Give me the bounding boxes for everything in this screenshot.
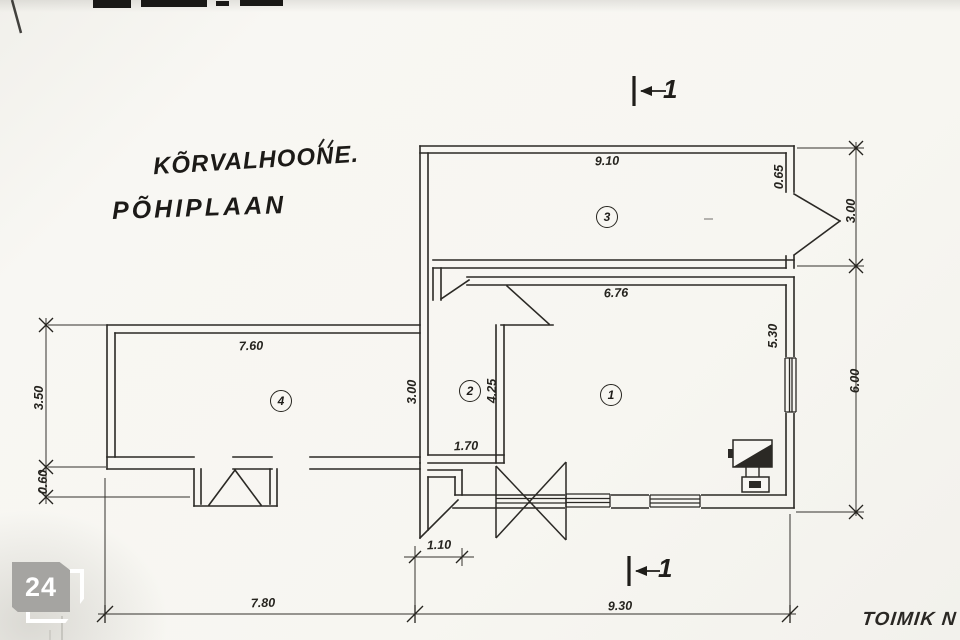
dim-room1-right: 5.30 (766, 324, 780, 348)
crossed-out-mark (496, 462, 566, 540)
page-number: 24 (25, 572, 57, 603)
dim-passage: 1.10 (427, 538, 452, 553)
dim-bottom-left: 7.80 (251, 596, 276, 611)
dim-left-lower: 0.60 (36, 470, 50, 494)
room-1-label: 1 (608, 388, 615, 402)
room-3-label: 3 (604, 210, 611, 224)
scanned-floorplan-page: KÕRVALHOONE. PÕHIPLAAN 1 2 3 4 9.10 6.76… (0, 0, 960, 640)
page-number-badge: 24 (4, 556, 88, 636)
dim-right-upper: 3.00 (844, 199, 858, 223)
dim-right-lower: 6.00 (848, 369, 862, 393)
room-2-label: 2 (467, 384, 474, 398)
dim-room4-width: 7.60 (239, 339, 264, 354)
section-marker-top-label: 1 (663, 74, 677, 105)
section-marker-bottom-label: 1 (658, 553, 672, 584)
dim-room3-door-offset: 0.65 (772, 165, 786, 189)
room-3-number: 3 (596, 206, 618, 228)
room-1-number: 1 (600, 384, 622, 406)
dim-room2-bottom: 1.70 (454, 439, 479, 454)
dim-corridor-height: 3.00 (405, 380, 419, 404)
stove-symbol (728, 440, 772, 492)
dim-room2-right: 4.25 (485, 379, 499, 403)
room-4-number: 4 (270, 390, 292, 412)
dim-left-upper: 3.50 (32, 386, 46, 410)
footer-doc-label: TOIMIK N (861, 609, 958, 631)
badge-face: 24 (12, 562, 70, 612)
dim-bottom-right: 9.30 (608, 599, 633, 614)
drawing-title-line2: PÕHIPLAAN (112, 191, 287, 226)
dim-room1-width: 6.76 (604, 286, 629, 301)
room-2-number: 2 (459, 380, 481, 402)
floor-plan-drawing (0, 0, 960, 640)
room-4-label: 4 (278, 394, 285, 408)
dim-room3-width: 9.10 (595, 154, 620, 169)
scan-artifacts (12, 0, 713, 640)
